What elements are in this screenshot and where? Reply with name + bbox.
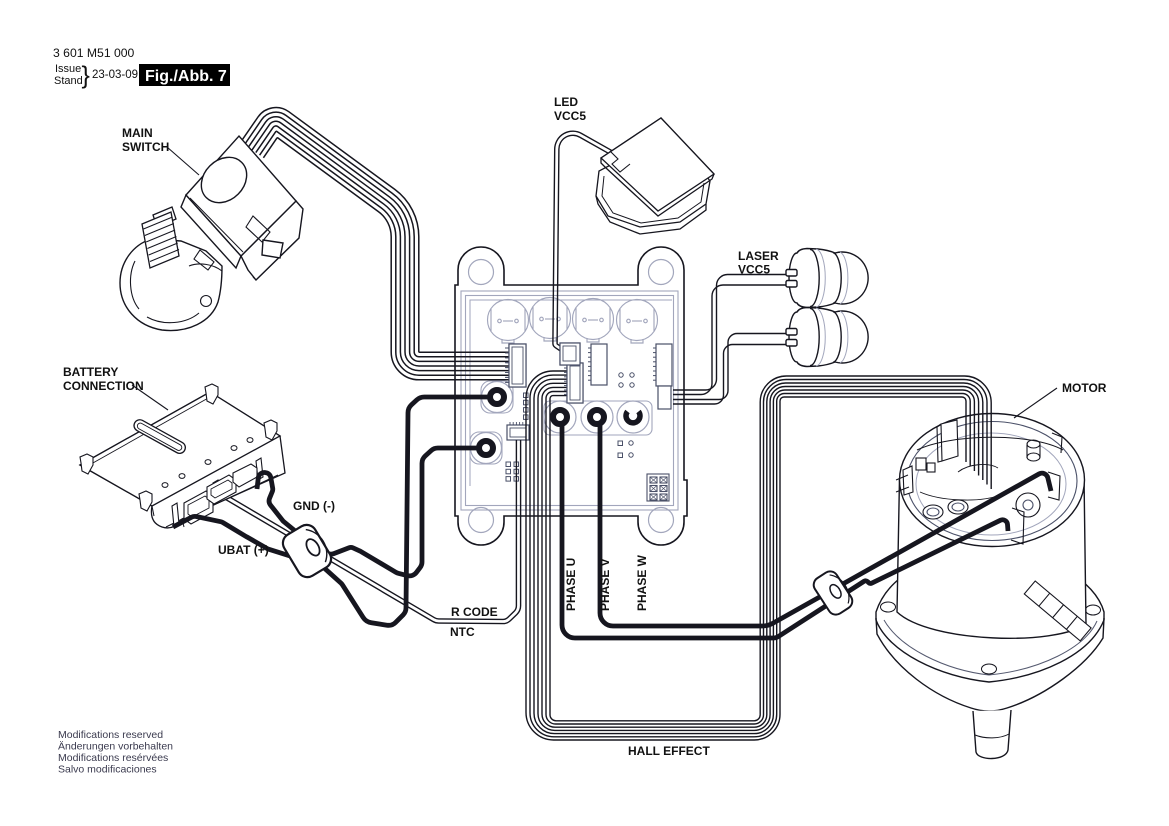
svg-text:Modifications resérvées: Modifications resérvées	[58, 752, 168, 764]
svg-text:PHASE U: PHASE U	[564, 558, 578, 611]
svg-text:MAIN: MAIN	[122, 126, 153, 140]
svg-text:HALL EFFECT: HALL EFFECT	[628, 744, 710, 758]
svg-text:PHASE V: PHASE V	[598, 558, 612, 611]
svg-text:VCC5: VCC5	[738, 263, 770, 277]
svg-text:3 601 M51 000: 3 601 M51 000	[53, 46, 135, 60]
svg-text:LASER: LASER	[738, 249, 779, 263]
svg-text:Salvo modificaciones: Salvo modificaciones	[58, 764, 157, 776]
svg-text:LED: LED	[554, 95, 578, 109]
svg-text:BATTERY: BATTERY	[63, 365, 118, 379]
svg-text:MOTOR: MOTOR	[1062, 381, 1107, 395]
svg-text:23-03-09: 23-03-09	[92, 69, 138, 81]
svg-text:Stand: Stand	[54, 75, 83, 87]
svg-text:VCC5: VCC5	[554, 109, 586, 123]
svg-text:Issue: Issue	[55, 63, 81, 75]
svg-text:GND (-): GND (-)	[293, 499, 335, 513]
svg-text:Änderungen vorbehalten: Änderungen vorbehalten	[58, 741, 173, 753]
svg-text:R CODE: R CODE	[451, 605, 498, 619]
svg-text:SWITCH: SWITCH	[122, 140, 169, 154]
svg-text:Fig./Abb. 7: Fig./Abb. 7	[145, 68, 227, 85]
svg-text:Modifications reserved: Modifications reserved	[58, 729, 163, 741]
svg-text:}: }	[82, 62, 90, 90]
svg-text:CONNECTION: CONNECTION	[63, 379, 144, 393]
svg-text:NTC: NTC	[450, 625, 475, 639]
svg-text:PHASE W: PHASE W	[635, 554, 649, 611]
svg-text:UBAT (+): UBAT (+)	[218, 543, 269, 557]
